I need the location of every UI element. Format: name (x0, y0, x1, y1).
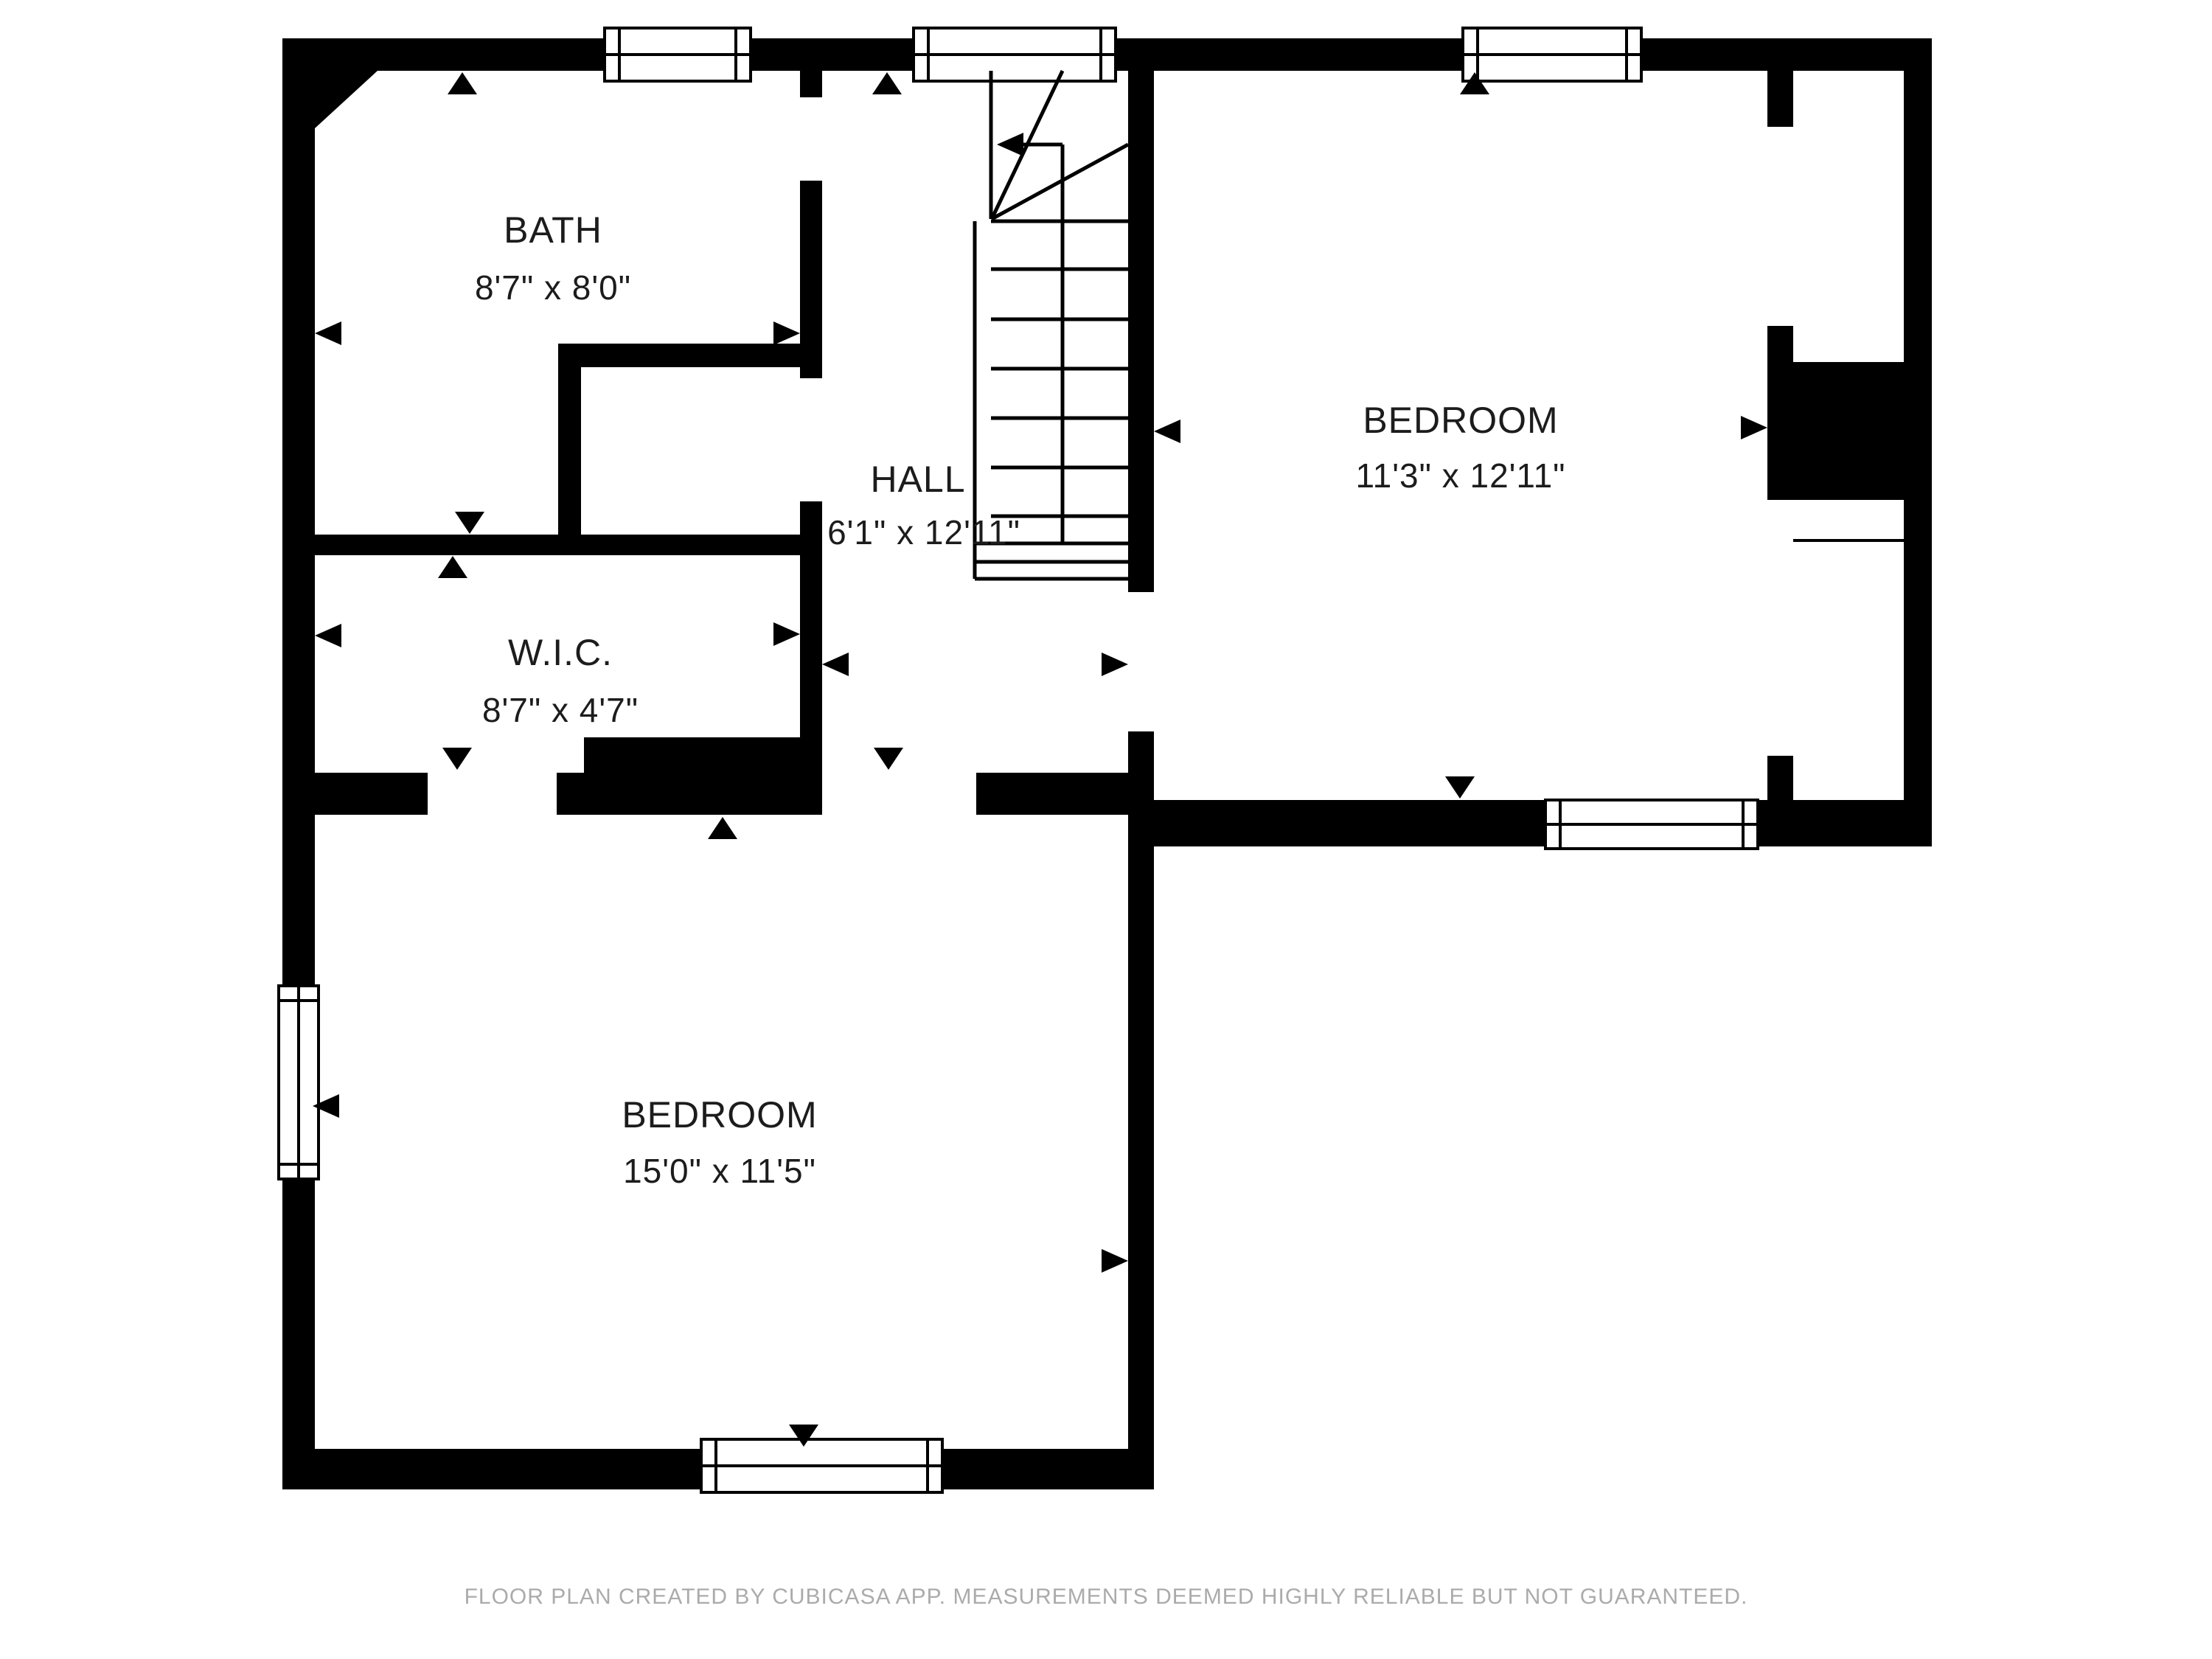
dimension-arrow-up-icon (448, 72, 477, 94)
room-dims-bedroom-lower: 15'0" x 11'5" (623, 1151, 816, 1191)
dimension-arrow-up-icon (872, 72, 902, 94)
dimension-arrow-right-icon (1102, 653, 1128, 676)
footer-disclaimer: FLOOR PLAN CREATED BY CUBICASA APP. MEAS… (465, 1585, 1748, 1610)
dimension-arrow-down-icon (1445, 776, 1475, 799)
floor-plan-canvas: BATH 8'7" x 8'0" HALL 6'1" x 12'11" BEDR… (0, 0, 2212, 1659)
dimension-arrow-left-icon (822, 653, 849, 676)
room-label-bedroom-lower: BEDROOM (622, 1093, 817, 1136)
room-label-bath: BATH (504, 209, 602, 251)
dimension-arrow-right-icon (1741, 416, 1767, 439)
dimension-arrow-right-icon (773, 321, 800, 345)
dimension-arrow-left-icon (315, 321, 341, 345)
dimension-arrow-up-icon (438, 556, 467, 578)
chamfer-corner (315, 71, 378, 128)
dimension-arrow-down-icon (442, 748, 472, 770)
staircase (975, 71, 1128, 579)
plan-graphics (0, 0, 2212, 1659)
room-dims-bath: 8'7" x 8'0" (475, 268, 631, 307)
dimension-arrow-left-icon (1154, 420, 1180, 443)
dimension-arrow-down-icon (789, 1425, 818, 1447)
dimension-arrow-left-icon (313, 1094, 339, 1118)
stair-winder-line (992, 145, 1128, 219)
dimension-arrow-down-icon (455, 512, 484, 534)
room-label-hall: HALL (870, 458, 965, 501)
dimension-arrow-down-icon (874, 748, 903, 770)
room-label-wic: W.I.C. (508, 631, 613, 674)
room-label-bedroom-upper: BEDROOM (1363, 399, 1558, 442)
stair-direction-arrow-icon (997, 133, 1023, 156)
room-dims-hall: 6'1" x 12'11" (827, 512, 1020, 552)
dimension-arrow-right-icon (773, 622, 800, 646)
dimension-arrow-up-icon (1460, 72, 1489, 94)
room-dims-wic: 8'7" x 4'7" (482, 690, 639, 730)
room-dims-bedroom-upper: 11'3" x 12'11" (1355, 456, 1565, 495)
dimension-arrow-up-icon (708, 817, 737, 839)
dimension-arrow-left-icon (315, 624, 341, 647)
dimension-arrow-right-icon (1102, 1249, 1128, 1273)
